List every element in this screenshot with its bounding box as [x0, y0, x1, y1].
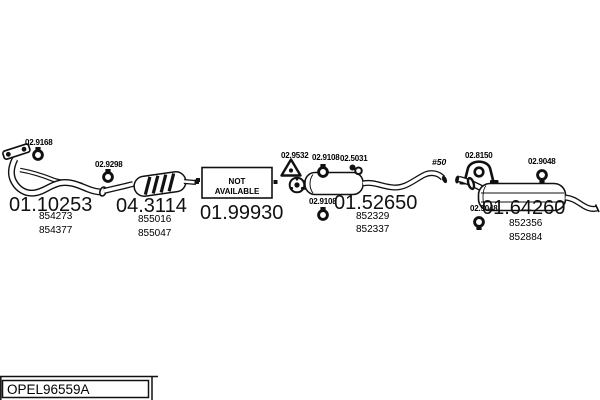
oe-number: 854377 [39, 225, 73, 236]
clamp-icon [538, 171, 547, 183]
pipe-diameter-note: #50 [432, 157, 446, 167]
not-available-line2: AVAILABLE [215, 187, 260, 196]
article-code-rear-muffler: 01.64260 [482, 197, 565, 219]
clamp-icon [319, 164, 328, 176]
diagram-canvas: 02.9168 02.9298 02.9532 02.9108 02.5031 … [0, 0, 600, 400]
clamp-icon [104, 169, 113, 181]
catalog-code: OPEL96559A [7, 382, 90, 397]
part-label-cat-clamp: 02.9298 [95, 160, 123, 169]
oe-number: 852356 [509, 218, 543, 229]
clamp-icon [319, 207, 328, 219]
part-label-rear-clamp-top: 02.9048 [528, 157, 556, 166]
front-pipe-drawing [11, 159, 107, 197]
connector-square [196, 178, 200, 182]
rubber-hanger-icon [282, 160, 301, 176]
oe-number: 852329 [356, 211, 390, 222]
part-label-mid-clamp-top: 02.9108 [312, 153, 340, 162]
part-label-rear-mount: 02.8150 [465, 151, 493, 160]
part-label-front-clamp: 02.9168 [25, 138, 53, 147]
not-available-line1: NOT [229, 177, 246, 186]
oe-number: 852337 [356, 224, 390, 235]
middle-muffler-drawing [282, 160, 449, 195]
connector-square [274, 180, 278, 184]
article-code-center-pipe: 01.99930 [200, 202, 283, 224]
part-label-mid-hanger-front: 02.9532 [281, 151, 309, 160]
oe-number: 855016 [138, 214, 172, 225]
part-label-mid-hanger-rear: 02.5031 [340, 154, 368, 163]
exhaust-parts-diagram: 02.9168 02.9298 02.9532 02.9108 02.5031 … [0, 0, 600, 400]
catalyst-drawing [104, 170, 199, 197]
oe-number: 852884 [509, 232, 543, 243]
oe-number: 854273 [39, 211, 73, 222]
oe-number: 855047 [138, 228, 172, 239]
clamp-icon [34, 147, 43, 159]
clamp-icon [475, 218, 484, 230]
